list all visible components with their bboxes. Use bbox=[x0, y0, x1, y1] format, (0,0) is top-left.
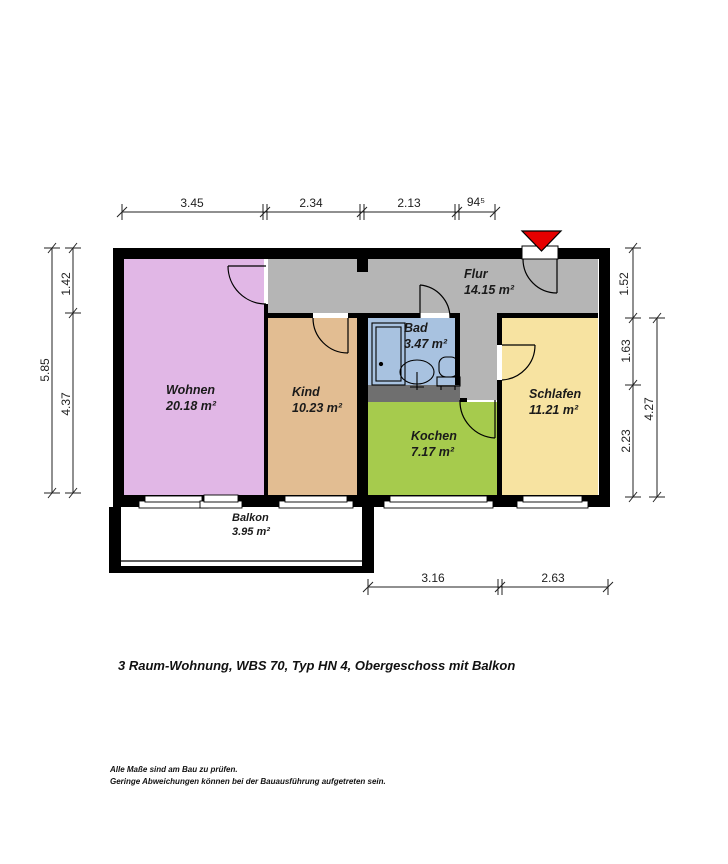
room-label-balkon: Balkon 3.95 m² bbox=[232, 511, 270, 539]
room-label-flur: Flur 14.15 m² bbox=[464, 266, 514, 298]
dim-top-2: 2.34 bbox=[299, 196, 322, 210]
room-area: 11.21 m² bbox=[529, 402, 581, 418]
door-swing-entrance bbox=[523, 259, 557, 293]
dim-right-1: 1.52 bbox=[617, 272, 631, 295]
window-schlafen bbox=[517, 496, 588, 508]
room-area: 7.17 m² bbox=[411, 444, 457, 460]
room-name: Flur bbox=[464, 266, 514, 282]
room-label-wohnen: Wohnen 20.18 m² bbox=[166, 382, 216, 414]
room-label-kochen: Kochen 7.17 m² bbox=[411, 428, 457, 460]
room-label-bad: Bad 3.47 m² bbox=[404, 320, 447, 352]
dim-bottom-1: 3.16 bbox=[421, 571, 444, 585]
dim-top-3: 2.13 bbox=[397, 196, 420, 210]
plan-footnotes: Alle Maße sind am Bau zu prüfen. Geringe… bbox=[110, 764, 386, 787]
room-area: 14.15 m² bbox=[464, 282, 514, 298]
door-swing-wohnen bbox=[228, 266, 266, 304]
room-area: 20.18 m² bbox=[166, 398, 216, 414]
dim-right-3: 2.23 bbox=[619, 429, 633, 452]
room-area: 3.47 m² bbox=[404, 336, 447, 352]
dim-left-1: 1.42 bbox=[59, 272, 73, 295]
dim-left-2: 5.85 bbox=[38, 358, 52, 381]
room-label-schlafen: Schlafen 11.21 m² bbox=[529, 386, 581, 418]
dim-right-4: 4.27 bbox=[642, 397, 656, 420]
dim-top-1: 3.45 bbox=[180, 196, 203, 210]
window-wohnen bbox=[139, 496, 208, 508]
room-name: Schlafen bbox=[529, 386, 581, 402]
shower-icon bbox=[372, 323, 405, 385]
window-kind bbox=[279, 496, 353, 508]
room-area: 10.23 m² bbox=[292, 400, 342, 416]
room-area: 3.95 m² bbox=[232, 525, 270, 539]
dim-left-3: 4.37 bbox=[59, 392, 73, 415]
plan-caption: 3 Raum-Wohnung, WBS 70, Typ HN 4, Oberge… bbox=[118, 658, 515, 673]
window-kochen bbox=[384, 496, 493, 508]
room-name: Bad bbox=[404, 320, 447, 336]
room-name: Kochen bbox=[411, 428, 457, 444]
dim-top-4: 94⁵ bbox=[467, 195, 485, 209]
door-swing-kochen bbox=[460, 400, 495, 438]
door-swing-kind bbox=[313, 318, 348, 353]
footnote-line: Alle Maße sind am Bau zu prüfen. bbox=[110, 764, 386, 776]
room-name: Balkon bbox=[232, 511, 270, 525]
room-name: Wohnen bbox=[166, 382, 216, 398]
floorplan-canvas: Wohnen 20.18 m² Kind 10.23 m² Flur 14.15… bbox=[0, 0, 728, 864]
balcony-door-wohnen bbox=[200, 495, 242, 508]
footnote-line: Geringe Abweichungen können bei der Baua… bbox=[110, 776, 386, 788]
dim-right-2: 1.63 bbox=[619, 339, 633, 362]
door-swing-schlafen bbox=[502, 345, 535, 380]
room-name: Kind bbox=[292, 384, 342, 400]
room-label-kind: Kind 10.23 m² bbox=[292, 384, 342, 416]
dim-bottom-2: 2.63 bbox=[541, 571, 564, 585]
door-swing-bad bbox=[420, 285, 450, 318]
